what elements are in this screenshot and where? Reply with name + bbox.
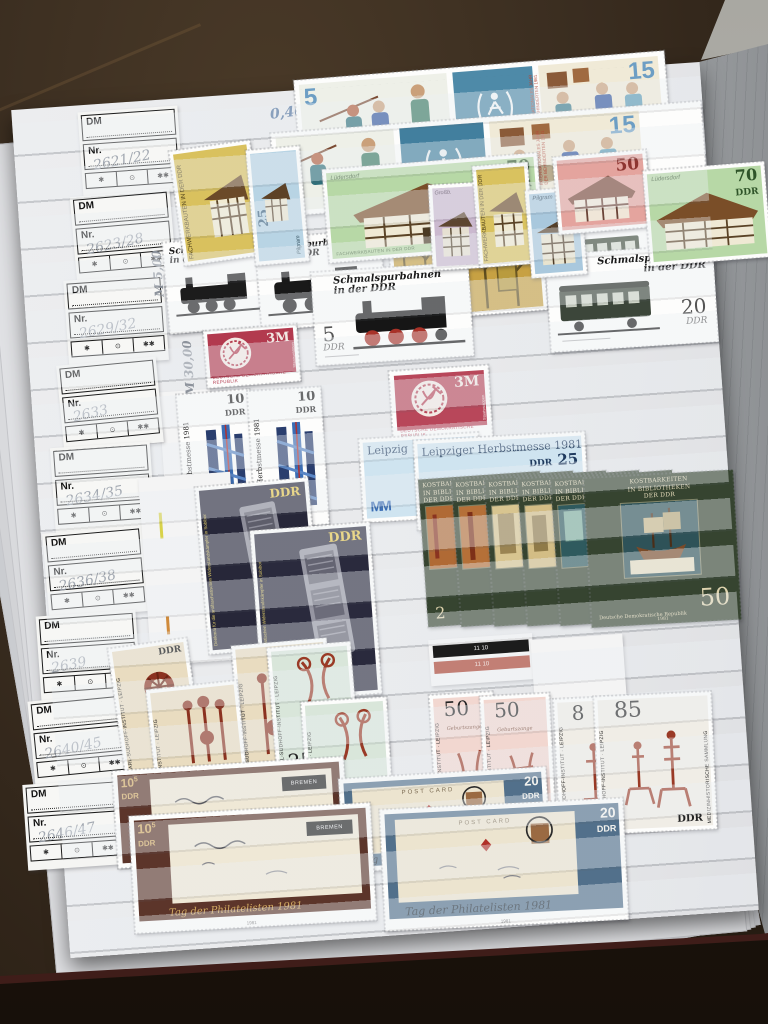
dm-text: DM [27, 782, 120, 800]
year-text: 1981 [501, 918, 511, 923]
house-art [484, 170, 529, 261]
letter-image: BREMEN [168, 814, 362, 903]
line3: DER DDR [522, 494, 554, 503]
place-name: Pilgram [532, 195, 553, 203]
country-name: Deutsche Demokratische Republik [599, 610, 687, 621]
stamp-philatelist-day-10: 105DDR BREMEN Tag der Philatelisten 1981… [129, 802, 377, 933]
line3: DER DDR [489, 495, 521, 504]
instrument-caption: Geburtszange [497, 726, 533, 734]
carriage-art [553, 277, 664, 342]
stamp-philatelist-day-20: 20DDR POST CARD Tag der Philatelisten 19… [379, 798, 629, 932]
dotted-line [86, 131, 172, 138]
house-art [255, 169, 294, 234]
postcard-image: POST CARD [395, 811, 579, 903]
stamp-art: FACHWERKBAUTEN IN DER DDR [476, 166, 531, 263]
stamp-value: 20 [681, 298, 707, 317]
mint-symbol: ✱ [37, 760, 68, 777]
stamp-value: 50 [699, 582, 731, 612]
mm-fair-logo: MM [370, 497, 390, 514]
stamp-value: 20DDR [521, 774, 540, 801]
stamp-value: 105DDR [120, 776, 139, 801]
series-script: Tag der Philatelisten 1981 [169, 900, 303, 918]
country-code: DDR [323, 345, 345, 354]
country-code: DDR [686, 318, 708, 327]
place-name: Großb. [434, 190, 451, 197]
line3: DER DDR [423, 495, 455, 504]
stamp-fachwerk-70-right: Lüdersdorf 70DDR [643, 161, 768, 266]
stamp-kostbarkeiten-50-ship: KOSTBARKEITENIN BIBLIOTHEKENDER DDR 50 D… [583, 470, 741, 628]
used-symbol: ⊙ [109, 253, 141, 270]
line3: DER DDR [555, 494, 587, 503]
price-label: DM Nr.2636/38 ✱⊙✱✱ [42, 525, 149, 619]
used-symbol: ⊙ [88, 506, 120, 522]
stamp-art: 20DDR POST CARD Tag der Philatelisten 19… [384, 803, 623, 919]
bremen-postmark: BREMEN [282, 774, 327, 791]
value-number: 10 [137, 821, 152, 837]
nr-box: Nr.2636/38 [48, 557, 144, 591]
stamp-value: 10DDR [294, 391, 316, 417]
mint-symbol: ✱ [44, 676, 75, 692]
collection-text: MEDIZINHISTORISCHE SAMMLUNG [702, 701, 714, 823]
stamp-value: 85 [613, 700, 642, 721]
dm-box: DM [39, 613, 135, 645]
stamp-value: 105DDR [137, 821, 157, 848]
dm-text: DM [32, 697, 125, 718]
dotted-line [44, 635, 130, 642]
used-symbol: ⊙ [74, 674, 106, 690]
price-label: DM Nr.2633 ✱⊙✱✱ [56, 356, 164, 451]
dm-box: DM [81, 109, 177, 141]
dm-text: DM [40, 614, 133, 632]
used-symbol: ⊙ [61, 842, 93, 858]
mnh-symbol: ✱✱ [112, 587, 144, 604]
stamp-wappen-3m: 3M Staatswappen DEUTSCHE DEMOKRATISCHE R… [203, 323, 301, 388]
stamp-fachwerk-50: 50 [552, 149, 652, 235]
nr-box: Nr.2629/32 [68, 306, 164, 338]
value-number: 10 [120, 776, 134, 791]
used-symbol: ⊙ [96, 421, 128, 438]
place-name: Lüdersdorf [330, 174, 359, 182]
photo-stamp-album: DM Nr.2621/22 ✱⊙✱✱ DM Nr.2623/28 ✱⊙✱✱ DM… [0, 0, 768, 1024]
dm-text: DM [82, 110, 175, 128]
painting-detail [564, 510, 584, 541]
country-code: DDR [522, 791, 540, 801]
stamp-value: 20DDR [596, 805, 617, 834]
country-code: DDR [295, 404, 316, 415]
year-text: 1981 [657, 617, 669, 623]
stamp-railway-5-red-wheels: Schmalspurbahnen in der DDR 5 DDR [310, 262, 474, 366]
printer-control-card: 11 10 11 10 [428, 633, 535, 686]
dm-text: DM [46, 529, 139, 549]
used-symbol: ⊙ [101, 338, 133, 354]
stamp-value: 50 [494, 700, 520, 719]
instrument-caption: Geburtszange [447, 724, 483, 732]
locomotive-art [348, 288, 470, 357]
stamp-value: 3M [454, 373, 480, 391]
mint-symbol: ✱ [72, 340, 103, 356]
value-number: 10 [297, 391, 316, 405]
stamp-value: 10DDR [223, 393, 245, 419]
stamp-value: 8 [571, 703, 585, 722]
stamp-art: 25 Pilgram [250, 150, 305, 262]
engraving-detail [532, 515, 548, 552]
price-label: DM Nr.2621/22 ✱⊙✱✱ [78, 106, 184, 199]
country-code: DDR [677, 813, 703, 825]
stamp-value: 3M [266, 330, 291, 347]
book-detail [467, 512, 475, 560]
place-name: Lüdersdorf [651, 175, 680, 183]
dm-box: DM [73, 192, 169, 226]
control-bar-black: 11 10 [433, 639, 530, 658]
stamp-art: 105DDR BREMEN Tag der Philatelisten 1981 [134, 808, 371, 922]
control-bar-red: 11 10 [434, 655, 531, 674]
stamp-art: Großb. [432, 186, 478, 266]
house-art [559, 164, 644, 228]
mint-symbol: ✱ [86, 172, 117, 188]
dm-box: DM [45, 528, 141, 562]
mint-symbol: ✱ [58, 508, 89, 524]
dm-text: DM [60, 361, 153, 382]
instrument-art [613, 726, 697, 818]
mint-symbol: ✱ [79, 256, 110, 273]
line3: DER DDR [456, 495, 488, 504]
value-number: 20 [600, 804, 616, 821]
dm-text: DM [74, 193, 167, 213]
ddr-emblem-icon [406, 375, 453, 422]
mnh-symbol: ✱✱ [127, 418, 159, 435]
dm-box: DM [53, 444, 149, 476]
ship-image [621, 500, 701, 578]
used-symbol: ⊙ [67, 757, 99, 774]
handwritten-price: M 30,00 [180, 340, 198, 396]
side-text: Staatswappen [480, 386, 487, 420]
title-clipped: Leipzig [367, 442, 408, 457]
control-numbers: 11 10 [473, 645, 488, 652]
country-code: DDR [121, 791, 139, 801]
color-tick [166, 616, 170, 634]
stamp-value: 50 [443, 699, 469, 718]
postmark-text: BREMEN [316, 824, 343, 831]
dotted-line [72, 299, 158, 306]
nr-box: Nr.2634/35 [55, 473, 151, 505]
value-number: 20 [524, 773, 539, 789]
dotted-line [59, 467, 145, 474]
country-code: DDR [597, 823, 617, 834]
nr-box: Nr.2646/47 [28, 810, 124, 842]
country-code: DDR [225, 407, 246, 419]
value-sup: 5 [134, 776, 138, 783]
stamp-art: Lüdersdorf 70DDR [647, 165, 768, 262]
bremen-postmark: BREMEN [306, 819, 353, 836]
country-code: DDR [138, 838, 156, 848]
stamp-fachwerk-25: 25 Pilgram [246, 146, 310, 266]
color-tick [159, 513, 164, 539]
side-text: Staatswappen [290, 338, 297, 368]
price-label: DM Nr.2646/47 ✱⊙✱✱ [22, 778, 128, 871]
engraving-detail [498, 513, 517, 554]
stamp-art: 50 [557, 154, 649, 231]
mint-symbol: ✱ [51, 593, 82, 610]
year-text: 1981 [247, 920, 257, 926]
locomotive-art [170, 262, 264, 322]
dm-box: DM [25, 781, 121, 813]
house-art [435, 198, 477, 264]
country-code: DDR [158, 644, 182, 657]
mint-symbol: ✱ [31, 844, 62, 860]
nr-box: Nr.2621/22 [83, 138, 179, 170]
stamp-value: 5 [322, 326, 336, 344]
postmark-text: BREMEN [291, 779, 318, 787]
value-sup: 5 [151, 822, 155, 829]
ddr-emblem-icon [215, 333, 256, 374]
stamp-art: 3M Staatswappen [394, 370, 487, 431]
book-detail [432, 514, 439, 558]
line3: DER DDR [644, 491, 675, 500]
dm-text: DM [54, 446, 147, 464]
dotted-line [31, 803, 117, 810]
postcard-art [395, 811, 578, 896]
dm-box: DM [66, 277, 162, 309]
stamp-value: 2 [435, 603, 446, 623]
used-symbol: ⊙ [81, 590, 113, 607]
control-numbers: 11 10 [475, 661, 490, 668]
mnh-symbol: ✱✱ [132, 336, 164, 352]
stamp-art: Schmalspurbahnen in der DDR 5 DDR [315, 266, 470, 362]
house-art [650, 182, 765, 254]
dm-text: DM [68, 278, 161, 296]
mint-symbol: ✱ [66, 424, 97, 441]
stockbook-page: DM Nr.2621/22 ✱⊙✱✱ DM Nr.2623/28 ✱⊙✱✱ DM… [11, 62, 759, 958]
used-symbol: ⊙ [116, 170, 148, 186]
